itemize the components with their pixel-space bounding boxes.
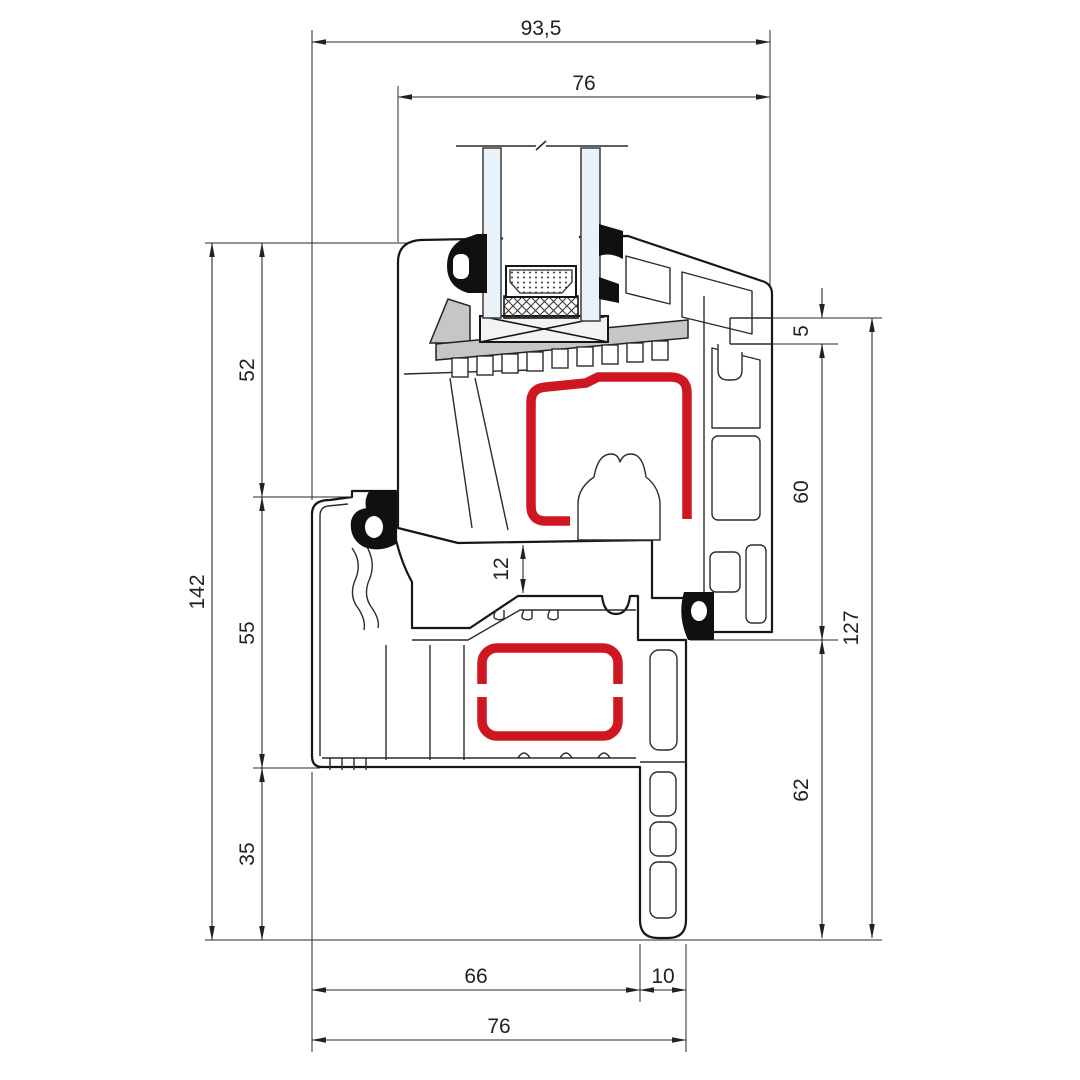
dim-left-below: 35: [236, 842, 259, 865]
glazing-gasket-right-upper: [599, 224, 623, 259]
dim-right-total: 127: [840, 610, 863, 645]
glass-pane-right: [581, 148, 600, 321]
spacer-desiccant: [510, 270, 572, 293]
dim-top-outer: 93,5: [521, 17, 562, 40]
dim-middle-gap: 12: [490, 557, 513, 580]
dim-bottom-frame: 66: [464, 965, 487, 988]
dim-bottom-total: 76: [487, 1015, 510, 1038]
profile-drawing: 93,5 76 142 52 55 35 12 5 60 62 127 66 1…: [0, 0, 1080, 1080]
dim-left-total: 142: [186, 574, 209, 609]
dim-top-inner: 76: [572, 72, 595, 95]
dim-right-sash: 60: [790, 480, 813, 503]
dim-left-frame: 55: [236, 621, 259, 644]
technical-drawing-canvas: 93,5 76 142 52 55 35 12 5 60 62 127 66 1…: [0, 0, 1080, 1080]
dim-right-lip: 5: [790, 325, 813, 337]
dim-left-sash: 52: [236, 358, 259, 381]
spacer-crosshatch: [504, 296, 578, 318]
glass-break-line: [456, 141, 628, 150]
dim-bottom-fin: 10: [651, 965, 674, 988]
dim-right-lower: 62: [790, 778, 813, 801]
